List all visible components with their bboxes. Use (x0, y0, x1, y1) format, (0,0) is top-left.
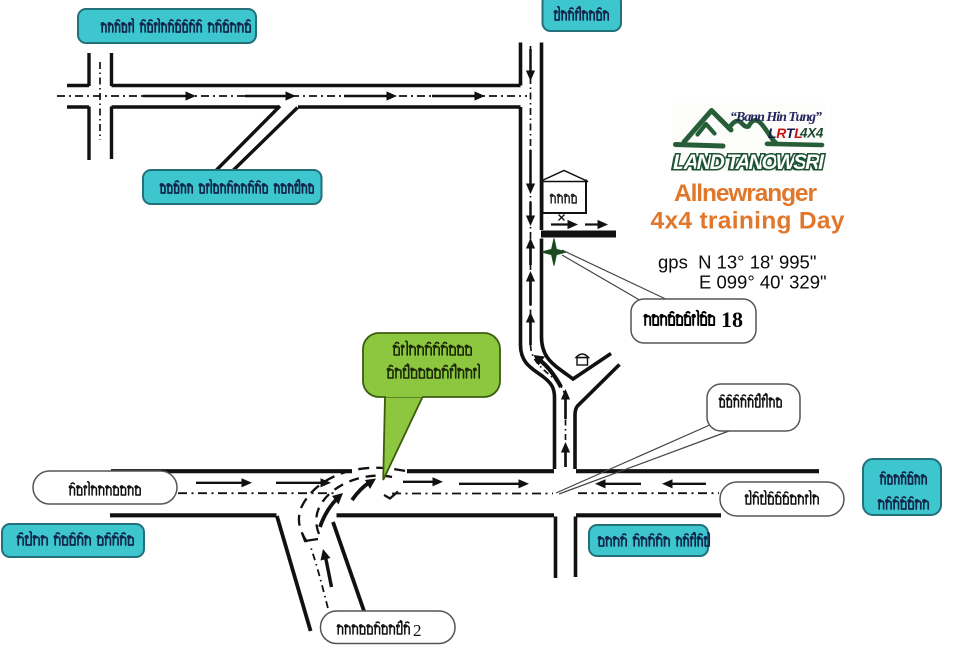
svg-text:gps N 13° 18' 995": gps N 13° 18' 995" (658, 252, 816, 273)
svg-text:“Bann Hin Tung”: “Bann Hin Tung” (730, 110, 822, 125)
svg-text:4X4: 4X4 (799, 126, 824, 141)
svg-text:E 099° 40' 329": E 099° 40' 329" (699, 272, 827, 293)
svg-text:LAND TANOWSRI: LAND TANOWSRI (673, 151, 825, 174)
svg-text:Allnewranger: Allnewranger (674, 180, 817, 207)
svg-text:LRTL: LRTL (768, 125, 802, 141)
svg-text:18: 18 (721, 307, 743, 332)
svg-text:2: 2 (413, 621, 422, 640)
svg-text:4x4 training Day: 4x4 training Day (651, 208, 845, 235)
